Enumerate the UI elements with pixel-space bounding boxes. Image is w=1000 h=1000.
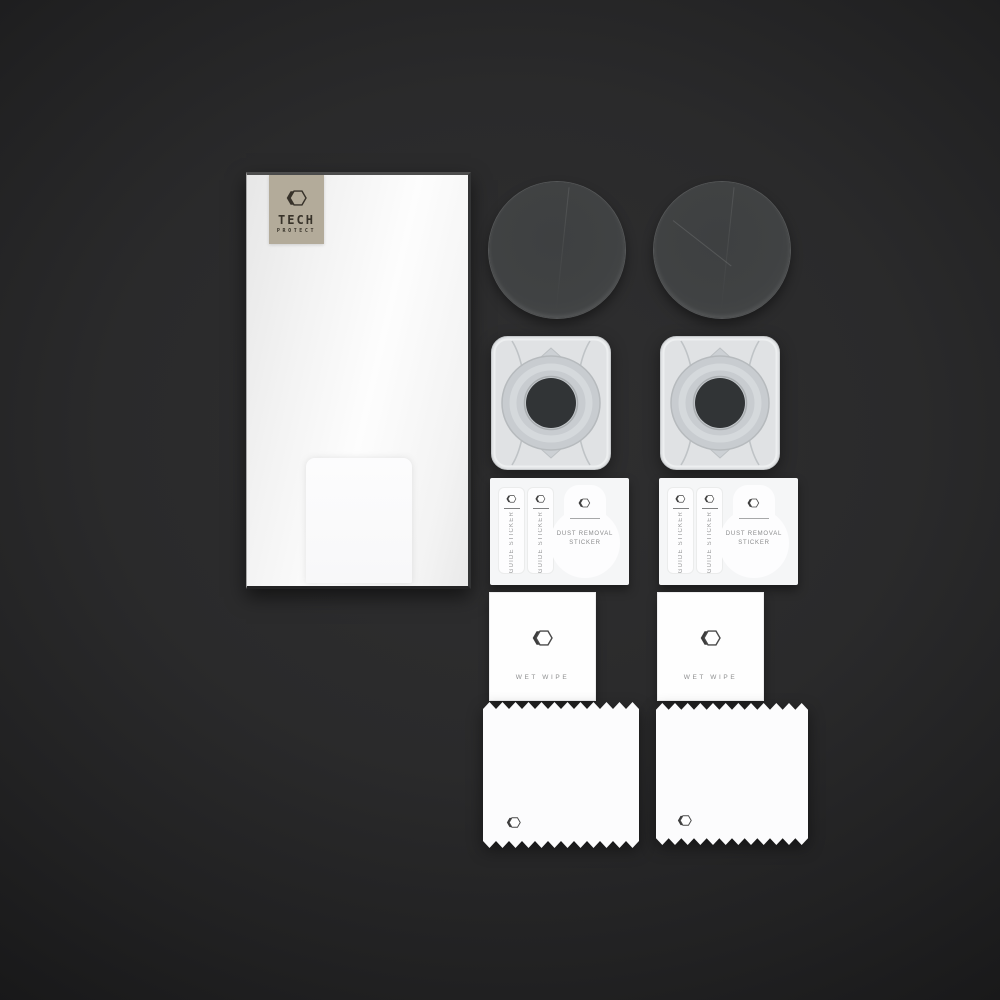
guide-sticker-label: GUIDE STICKER bbox=[707, 511, 713, 573]
brand-name: TECH bbox=[278, 213, 315, 227]
brand-label: TECH PROTECT bbox=[269, 175, 324, 244]
hexagon-logo-icon bbox=[746, 496, 761, 510]
wet-wipe-label: WET WIPE bbox=[516, 674, 570, 681]
glass-reflection bbox=[556, 188, 570, 313]
hexagon-logo-icon bbox=[577, 496, 592, 510]
hexagon-logo-icon bbox=[676, 812, 694, 829]
dust-removal-sticker: DUST REMOVAL STICKER bbox=[719, 485, 789, 578]
hexagon-logo-icon bbox=[703, 493, 716, 505]
hexagon-logo-icon bbox=[284, 186, 310, 210]
glass-protector-1 bbox=[489, 182, 625, 318]
divider bbox=[533, 508, 549, 509]
wet-wipe-label: WET WIPE bbox=[684, 674, 738, 681]
divider bbox=[739, 518, 769, 519]
divider bbox=[570, 518, 600, 519]
hexagon-logo-icon bbox=[505, 493, 518, 505]
divider bbox=[673, 508, 689, 509]
guide-sticker-label: GUIDE STICKER bbox=[678, 511, 684, 573]
glass-reflection-line bbox=[673, 220, 732, 266]
glass-protector-2 bbox=[654, 182, 790, 318]
guide-sticker: GUIDE STICKER bbox=[499, 488, 524, 573]
hexagon-logo-icon bbox=[534, 493, 547, 505]
brand-subname: PROTECT bbox=[277, 228, 316, 234]
dust-removal-label: DUST REMOVAL STICKER bbox=[550, 530, 620, 548]
sticker-sheet-1: GUIDE STICKER GUIDE STICKER DUST REMOVAL… bbox=[490, 478, 629, 585]
guide-sticker-label: GUIDE STICKER bbox=[538, 511, 544, 573]
dust-removal-sticker: DUST REMOVAL STICKER bbox=[550, 485, 620, 578]
hexagon-logo-icon bbox=[530, 626, 556, 650]
wet-wipe-2: WET WIPE bbox=[658, 593, 763, 700]
divider bbox=[702, 508, 718, 509]
divider bbox=[504, 508, 520, 509]
box-front-sticker bbox=[306, 458, 412, 583]
hexagon-logo-icon bbox=[674, 493, 687, 505]
wet-wipe-1: WET WIPE bbox=[490, 593, 595, 700]
glass-reflection bbox=[721, 188, 735, 313]
product-photo-scene: TECH PROTECT bbox=[0, 0, 1000, 1000]
hexagon-logo-icon bbox=[698, 626, 724, 650]
product-box: TECH PROTECT bbox=[246, 172, 471, 589]
sticker-sheet-2: GUIDE STICKER GUIDE STICKER DUST REMOVAL… bbox=[659, 478, 798, 585]
applicator-frame-1 bbox=[490, 335, 612, 471]
applicator-frame-2 bbox=[659, 335, 781, 471]
dust-removal-label: DUST REMOVAL STICKER bbox=[719, 530, 789, 548]
guide-sticker: GUIDE STICKER bbox=[668, 488, 693, 573]
guide-sticker-label: GUIDE STICKER bbox=[509, 511, 515, 573]
hexagon-logo-icon bbox=[505, 814, 523, 831]
